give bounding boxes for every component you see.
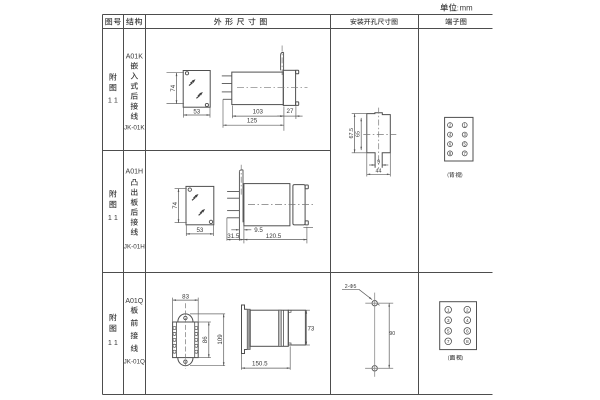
svg-text:): ): [461, 355, 463, 361]
svg-text:74: 74: [170, 84, 177, 91]
svg-text:150.5: 150.5: [252, 361, 268, 368]
svg-text:9: 9: [377, 159, 380, 165]
svg-text:86: 86: [202, 336, 209, 343]
svg-text:1 1: 1 1: [108, 213, 118, 222]
svg-text:90: 90: [389, 331, 395, 337]
svg-text:1: 1: [447, 307, 450, 313]
svg-text:1 1: 1 1: [108, 95, 118, 104]
svg-text:31.5: 31.5: [227, 233, 240, 240]
svg-text:5: 5: [447, 329, 450, 335]
svg-text:74: 74: [172, 201, 179, 208]
svg-text:120.5: 120.5: [266, 233, 282, 240]
svg-text:(: (: [448, 355, 450, 361]
svg-text:53: 53: [193, 108, 200, 115]
svg-text:): ): [461, 173, 463, 179]
svg-text:83: 83: [182, 293, 189, 300]
svg-text:mm: mm: [460, 4, 473, 13]
svg-text:A01K: A01K: [126, 54, 143, 61]
svg-text:(: (: [447, 173, 449, 179]
svg-text:4: 4: [466, 318, 469, 324]
svg-text:A01Q: A01Q: [125, 298, 143, 305]
svg-text:7: 7: [447, 339, 450, 345]
svg-text:125: 125: [247, 118, 258, 125]
svg-text:6: 6: [466, 329, 469, 335]
svg-text:A01H: A01H: [126, 169, 144, 176]
svg-text:9.5: 9.5: [254, 227, 263, 234]
svg-text:JK-01K: JK-01K: [124, 124, 145, 131]
svg-text:3: 3: [447, 318, 450, 324]
svg-text:65: 65: [356, 131, 362, 137]
svg-text:53: 53: [196, 227, 203, 234]
svg-text:JK-01H: JK-01H: [124, 244, 145, 251]
svg-text:103: 103: [253, 109, 264, 116]
svg-text:27: 27: [287, 108, 294, 115]
svg-text:73: 73: [307, 325, 314, 332]
svg-text:JK-01Q: JK-01Q: [124, 359, 145, 366]
svg-text:2: 2: [466, 307, 469, 313]
svg-text:1 1: 1 1: [108, 338, 118, 347]
svg-text:67.5: 67.5: [349, 128, 355, 139]
svg-text:109: 109: [217, 334, 224, 345]
svg-text:8: 8: [466, 339, 469, 345]
svg-text:44: 44: [376, 169, 382, 175]
svg-text::: :: [457, 3, 459, 12]
